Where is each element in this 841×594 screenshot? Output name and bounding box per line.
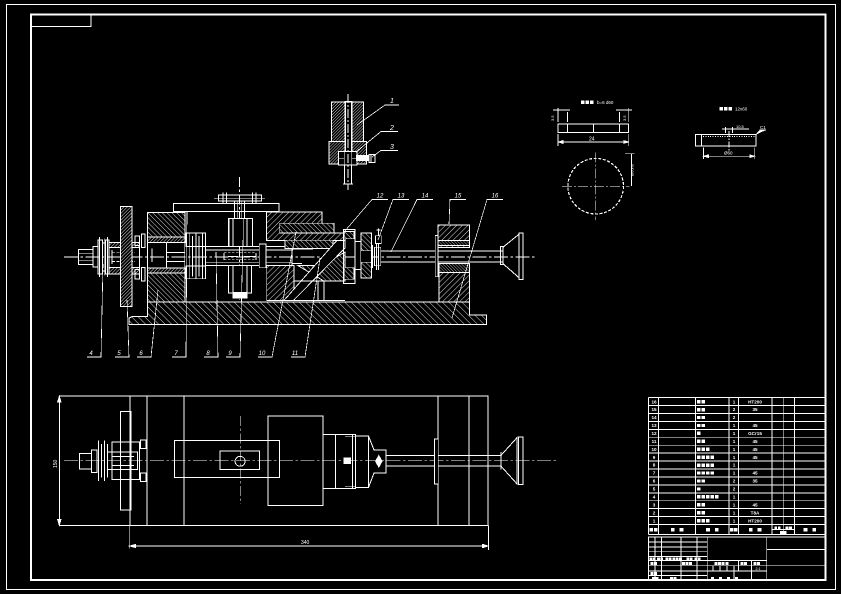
svg-text:1: 1 (733, 439, 736, 444)
svg-text:15: 15 (651, 407, 657, 412)
svg-text:C1: C1 (760, 125, 766, 130)
svg-text:13: 13 (651, 423, 657, 428)
svg-text:1: 1 (733, 495, 736, 500)
svg-text:1: 1 (733, 399, 736, 404)
svg-text:2: 2 (653, 510, 656, 515)
svg-text:12x60: 12x60 (735, 107, 748, 112)
svg-text:45: 45 (752, 502, 758, 507)
svg-text:13: 13 (398, 194, 405, 200)
svg-text:14: 14 (422, 194, 429, 200)
svg-text:9: 9 (653, 455, 656, 460)
svg-text:1: 1 (653, 518, 656, 523)
svg-text:8: 8 (653, 463, 656, 468)
svg-text:Ø60: Ø60 (724, 151, 733, 156)
svg-text:45: 45 (752, 455, 758, 460)
svg-text:45: 45 (752, 439, 758, 444)
svg-text:45: 45 (752, 447, 758, 452)
svg-text:2: 2 (389, 125, 394, 132)
svg-text:3: 3 (653, 502, 656, 507)
svg-text:1: 1 (733, 471, 736, 476)
svg-text:2: 2 (733, 415, 736, 420)
svg-text:5: 5 (653, 487, 656, 492)
svg-text:45: 45 (752, 423, 758, 428)
svg-text:3: 3 (390, 144, 394, 151)
svg-text:HT200: HT200 (748, 399, 762, 404)
svg-text:6: 6 (653, 479, 656, 484)
svg-text:4: 4 (653, 495, 656, 500)
svg-text:HT200: HT200 (748, 518, 762, 523)
svg-text:3.5: 3.5 (550, 115, 555, 121)
svg-text:35: 35 (752, 479, 758, 484)
svg-text:10: 10 (651, 447, 657, 452)
svg-text:2: 2 (733, 407, 736, 412)
svg-text:11: 11 (652, 439, 657, 444)
svg-text:7: 7 (653, 471, 656, 476)
svg-text:2: 2 (733, 479, 736, 484)
svg-text:12: 12 (651, 431, 657, 436)
svg-text:10: 10 (259, 351, 266, 357)
svg-text:16: 16 (651, 399, 657, 404)
svg-text:340: 340 (301, 540, 310, 546)
svg-text:2:1: 2:1 (756, 567, 761, 571)
svg-text:1: 1 (733, 455, 736, 460)
svg-text:150: 150 (53, 459, 59, 468)
svg-text:15: 15 (455, 194, 462, 200)
svg-text:16: 16 (492, 194, 499, 200)
svg-text:14: 14 (651, 415, 657, 420)
svg-text:1: 1 (390, 98, 394, 105)
svg-text:b=6 d60: b=6 d60 (597, 100, 614, 105)
svg-text:GCr15: GCr15 (748, 431, 762, 436)
svg-text:2: 2 (733, 487, 736, 492)
svg-text:1: 1 (733, 423, 736, 428)
svg-text:1: 1 (733, 447, 736, 452)
svg-text:1: 1 (733, 431, 736, 436)
svg-text:1: 1 (733, 463, 736, 468)
svg-text:1: 1 (733, 510, 736, 515)
svg-text:Ø60h6: Ø60h6 (630, 163, 635, 176)
svg-text:24: 24 (589, 137, 595, 143)
svg-text:3.5: 3.5 (622, 115, 627, 121)
svg-text:10.5: 10.5 (736, 124, 745, 129)
svg-text:45: 45 (752, 471, 758, 476)
svg-text:1: 1 (733, 502, 736, 507)
svg-text:35: 35 (752, 407, 758, 412)
svg-text:T8A: T8A (751, 510, 760, 515)
svg-text:12: 12 (377, 194, 384, 200)
svg-text:1: 1 (733, 518, 736, 523)
svg-text:11: 11 (292, 351, 298, 357)
